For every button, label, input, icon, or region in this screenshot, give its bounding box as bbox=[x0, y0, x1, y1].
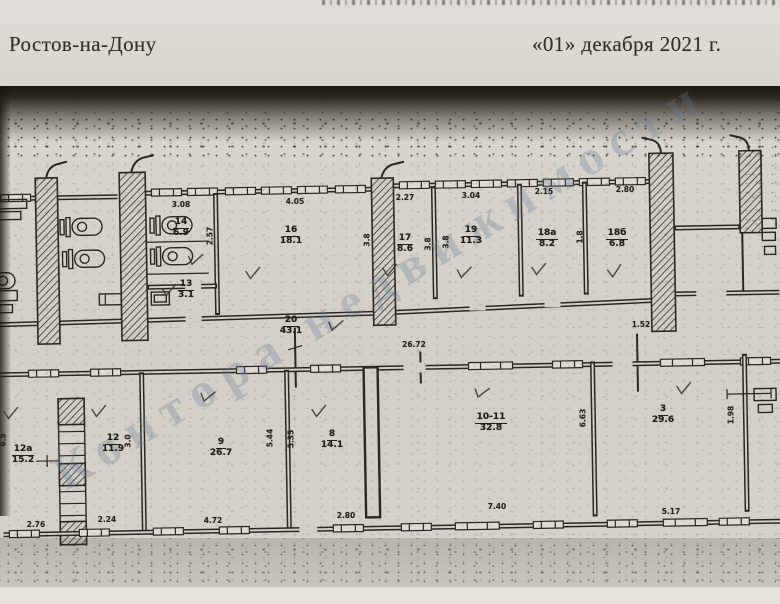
dimension-d11: 4.72 bbox=[204, 516, 223, 525]
dimension-d9: 2.76 bbox=[27, 520, 46, 529]
checkmark-icon bbox=[310, 404, 327, 424]
dimension-d13: 7.40 bbox=[488, 502, 507, 511]
room-area: 14.1 bbox=[314, 441, 350, 451]
dimension-v4: 3.8 bbox=[442, 235, 451, 248]
dimension-d2: 4.05 bbox=[286, 197, 305, 206]
room-label-room-16: 1618.1 bbox=[273, 226, 309, 246]
checkmark-icon bbox=[160, 283, 177, 303]
dimension-v10: 6.63 bbox=[579, 409, 588, 428]
checkmark-icon bbox=[185, 251, 205, 273]
room-area: 11.3 bbox=[452, 237, 490, 247]
room-label-room-9: 926.7 bbox=[202, 438, 240, 458]
dimension-d12: 2.80 bbox=[337, 511, 356, 520]
dimension-v8: 5.44 bbox=[266, 429, 275, 448]
dimension-d3: 2.27 bbox=[396, 193, 415, 202]
checkmark-icon bbox=[196, 387, 217, 410]
dimension-v11: 1.98 bbox=[727, 406, 736, 425]
scanned-document-page: { "document": { "city": "Ростов-на-Дону"… bbox=[0, 0, 780, 604]
room-label-room-17: 178.6 bbox=[388, 234, 422, 254]
checkmark-icon bbox=[244, 266, 261, 286]
room-area: 8.2 bbox=[528, 240, 566, 250]
checkmark-icon bbox=[530, 262, 547, 282]
checkmark-icon bbox=[470, 383, 491, 407]
dimension-d1: 3.08 bbox=[172, 200, 191, 209]
room-area: 43.1 bbox=[274, 327, 308, 337]
dimension-v1: 2.57 bbox=[206, 227, 215, 246]
room-label-room-19: 1911.3 bbox=[452, 226, 490, 246]
dimension-d14: 5.17 bbox=[662, 507, 681, 516]
dimension-d8: 1.52 bbox=[632, 320, 651, 329]
checkmark-icon bbox=[381, 263, 398, 283]
room-area: 8.6 bbox=[388, 245, 422, 255]
dimension-v7: 3.0 bbox=[124, 434, 133, 447]
room-label-room-18a: 18а8.2 bbox=[528, 229, 566, 249]
dimension-d6: 2.80 bbox=[616, 185, 635, 194]
room-label-room-3: 329.6 bbox=[644, 405, 682, 425]
checkmark-icon bbox=[90, 404, 107, 424]
room-area: 29.6 bbox=[644, 416, 682, 426]
dimension-v2: 3.8 bbox=[363, 233, 372, 246]
room-label-room-10-11: 10-1132.8 bbox=[466, 413, 516, 433]
room-label-corridor-20: 2043.1 bbox=[274, 316, 308, 336]
dimension-d7: 26.72 bbox=[402, 340, 426, 349]
dimension-v9: 5.35 bbox=[287, 430, 296, 449]
room-area: 6.8 bbox=[598, 240, 636, 250]
room-label-room-8: 814.1 bbox=[314, 430, 350, 450]
dimension-d4: 3.04 bbox=[462, 191, 481, 200]
dimension-d10: 2.24 bbox=[98, 515, 117, 524]
dimension-v6: 6.5 bbox=[0, 433, 8, 446]
checkmark-icon bbox=[324, 317, 344, 340]
dimension-v3: 3.8 bbox=[424, 237, 433, 250]
room-area: 6.9 bbox=[163, 229, 199, 239]
room-area: 32.8 bbox=[466, 424, 516, 434]
room-label-room-12a: 12а15.2 bbox=[4, 445, 42, 465]
room-area: 15.2 bbox=[4, 456, 42, 466]
dimension-d5: 2.15 bbox=[535, 187, 554, 196]
room-area: 18.1 bbox=[273, 237, 309, 247]
room-label-room-18b: 18б6.8 bbox=[598, 229, 636, 249]
checkmark-icon bbox=[2, 406, 19, 426]
room-label-room-14: 146.9 bbox=[163, 218, 199, 238]
plan-labels-layer: 146.9133.11618.1178.61911.318а8.218б6.82… bbox=[0, 0, 780, 604]
checkmark-icon bbox=[675, 381, 692, 401]
dimension-v5: 1.8 bbox=[576, 230, 585, 243]
room-area: 26.7 bbox=[202, 449, 240, 459]
checkmark-icon bbox=[454, 264, 473, 285]
checkmark-icon bbox=[605, 263, 624, 285]
